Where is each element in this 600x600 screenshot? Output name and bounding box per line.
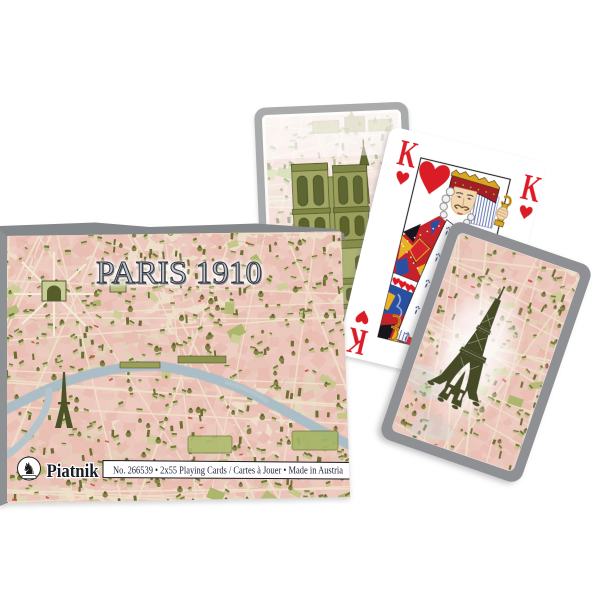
svg-text:PARIS 1910: PARIS 1910 <box>96 254 262 290</box>
svg-text:Piatnik: Piatnik <box>47 461 99 482</box>
svg-text:No. 266539 • 2x55 Playing Card: No. 266539 • 2x55 Playing Cards / Cartes… <box>113 466 343 477</box>
